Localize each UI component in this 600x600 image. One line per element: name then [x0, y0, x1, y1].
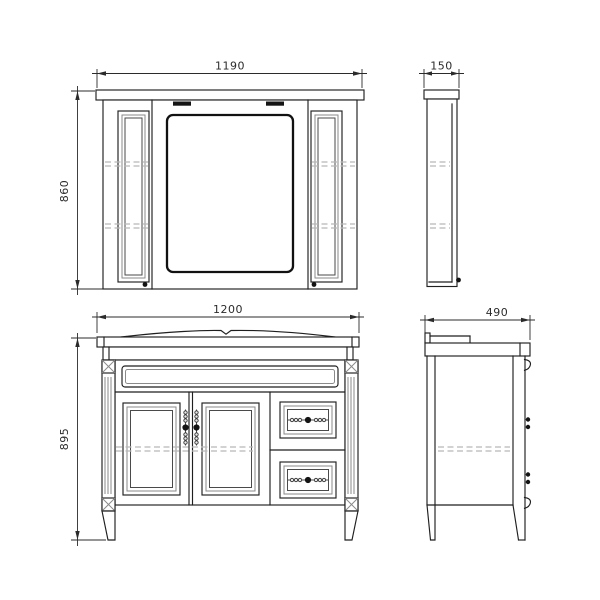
right-pilaster — [345, 360, 358, 511]
counter-slab-side — [425, 343, 530, 356]
dimension-vanity-width: 1200 — [92, 303, 364, 333]
backsplash-profile — [425, 333, 430, 343]
mirror-cabinet-front-view: 1190 860 — [58, 60, 367, 296]
mirror-depth-label: 150 — [430, 60, 453, 73]
dimension-vanity-height: 895 — [58, 333, 106, 546]
vanity-right-door — [202, 403, 259, 495]
dimension-vanity-depth: 490 — [420, 306, 535, 340]
vanity-depth-label: 490 — [486, 306, 509, 319]
side-back-leg — [427, 505, 435, 540]
mirror-side-knob — [456, 278, 461, 283]
left-door-knob — [143, 282, 148, 287]
mirror-panel — [167, 115, 293, 272]
drawer-handle-profile-bottom — [525, 472, 530, 484]
mirror-right-door — [311, 111, 342, 287]
drawer-handle-profile-top — [525, 417, 530, 429]
technical-drawing-canvas: 1190 860 — [0, 0, 600, 600]
countertop-wave-profile — [121, 330, 335, 337]
countertop-edge — [97, 337, 359, 347]
dimension-mirror-height: 860 — [58, 86, 104, 295]
mirror-width-label: 1190 — [215, 60, 245, 73]
mirror-crown-top — [96, 90, 364, 100]
dimension-mirror-depth: 150 — [419, 60, 464, 89]
mirror-height-label: 860 — [58, 180, 71, 203]
right-door-knob — [312, 282, 317, 287]
vanity-front-view: 1200 895 — [58, 303, 364, 546]
vanity-left-leg — [102, 511, 115, 540]
mirror-side-cap — [424, 90, 459, 99]
mirror-cabinet-side-view: 150 — [419, 60, 464, 287]
drawing-sheet: 1190 860 — [0, 0, 600, 600]
vanity-left-door — [123, 403, 180, 495]
vanity-height-label: 895 — [58, 428, 71, 451]
left-pilaster — [102, 360, 115, 511]
vanity-right-leg — [345, 511, 358, 540]
mirror-left-door — [118, 111, 149, 287]
counter-apron — [103, 347, 353, 360]
vanity-width-label: 1200 — [213, 303, 243, 316]
light-fixture-left — [173, 102, 191, 106]
light-fixture-right — [266, 102, 284, 106]
vanity-side-view: 490 — [420, 306, 535, 540]
shelf-lines-vanity-side — [438, 447, 510, 451]
dimension-mirror-width: 1190 — [92, 60, 367, 89]
